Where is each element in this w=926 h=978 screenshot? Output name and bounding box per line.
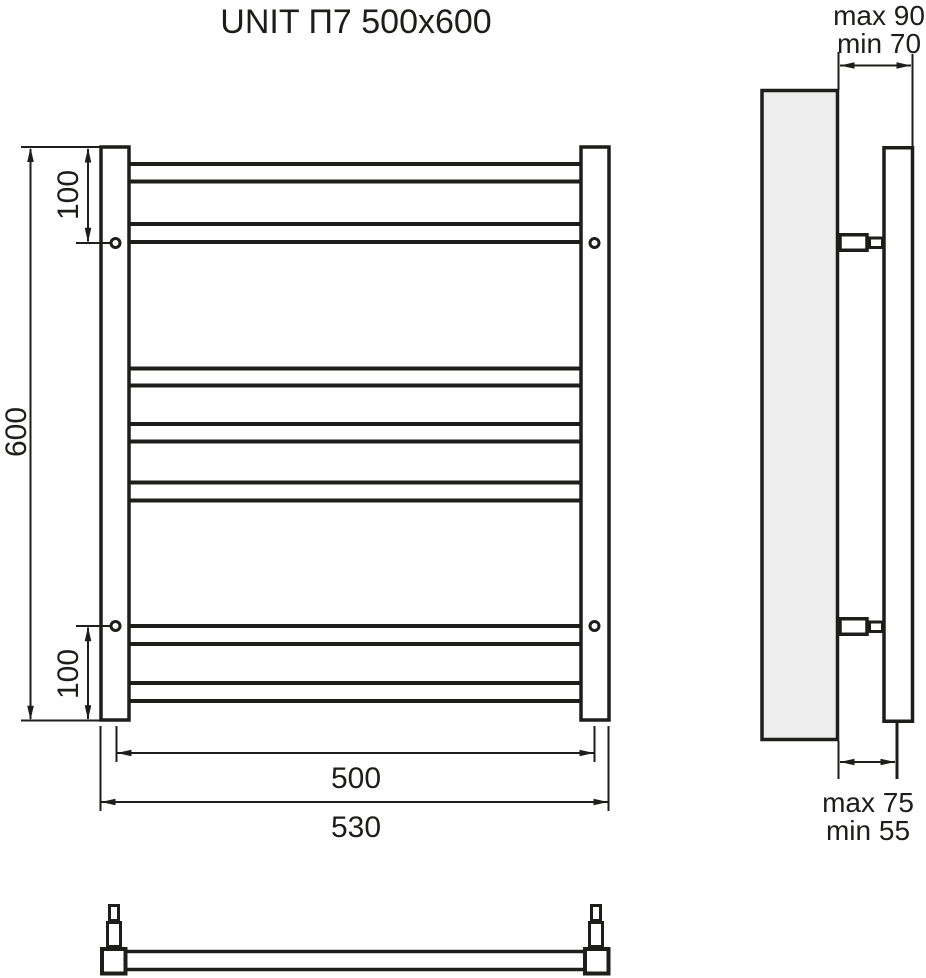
top-offset-label: 100 (52, 170, 85, 220)
dim-height-600: 600 (0, 148, 34, 721)
mounting-hole-top-left (111, 239, 120, 248)
bottom-view-right-fitting (585, 906, 609, 974)
bottom-view (102, 906, 609, 974)
dim-top-offset-100: 100 (52, 148, 91, 242)
rung-7 (128, 683, 582, 701)
bottom-offset-label: 100 (52, 649, 85, 699)
top-clearance-max-label: max 90 (833, 0, 925, 31)
rung-3 (128, 369, 582, 386)
mount-spacing-label: 500 (331, 762, 381, 795)
drawing-title: UNIT П7 500x600 (220, 3, 491, 41)
rung-1 (128, 164, 582, 182)
right-upright-tube (581, 147, 609, 720)
rung-6 (128, 626, 582, 644)
bottom-view-left-fitting (102, 906, 126, 974)
dim-wall-clearance-bottom: max 75 min 55 (822, 741, 914, 846)
rung-5 (128, 483, 582, 501)
wall-bracket-top (840, 235, 883, 251)
bottom-clearance-max-label: max 75 (822, 787, 914, 818)
wall-bracket-bottom (840, 619, 883, 635)
mounting-hole-bottom-left (111, 622, 120, 631)
bottom-clearance-min-label: min 55 (826, 815, 910, 846)
upright-side-profile (884, 148, 913, 722)
mounting-hole-top-right (590, 239, 599, 248)
top-clearance-min-label: min 70 (837, 28, 921, 59)
bottom-view-rail (126, 952, 584, 970)
mounting-hole-bottom-right (590, 622, 599, 631)
dim-wall-clearance-top: max 90 min 70 (833, 0, 925, 147)
front-view: 600 100 100 500 (0, 147, 609, 844)
rung-2 (128, 224, 582, 242)
towel-rail-dimension-drawing: UNIT П7 500x600 (0, 0, 926, 978)
overall-width-label: 530 (331, 811, 381, 844)
side-view: max 90 min 70 max 75 min 55 (762, 0, 925, 846)
left-upright-tube (101, 147, 129, 720)
rung-4 (128, 424, 582, 442)
dim-bottom-offset-100: 100 (52, 627, 91, 720)
dim-mount-spacing-500: 500 (117, 726, 595, 795)
height-label: 600 (0, 407, 33, 457)
technical-drawing-page: UNIT П7 500x600 (0, 0, 926, 978)
wall-panel (762, 91, 838, 740)
